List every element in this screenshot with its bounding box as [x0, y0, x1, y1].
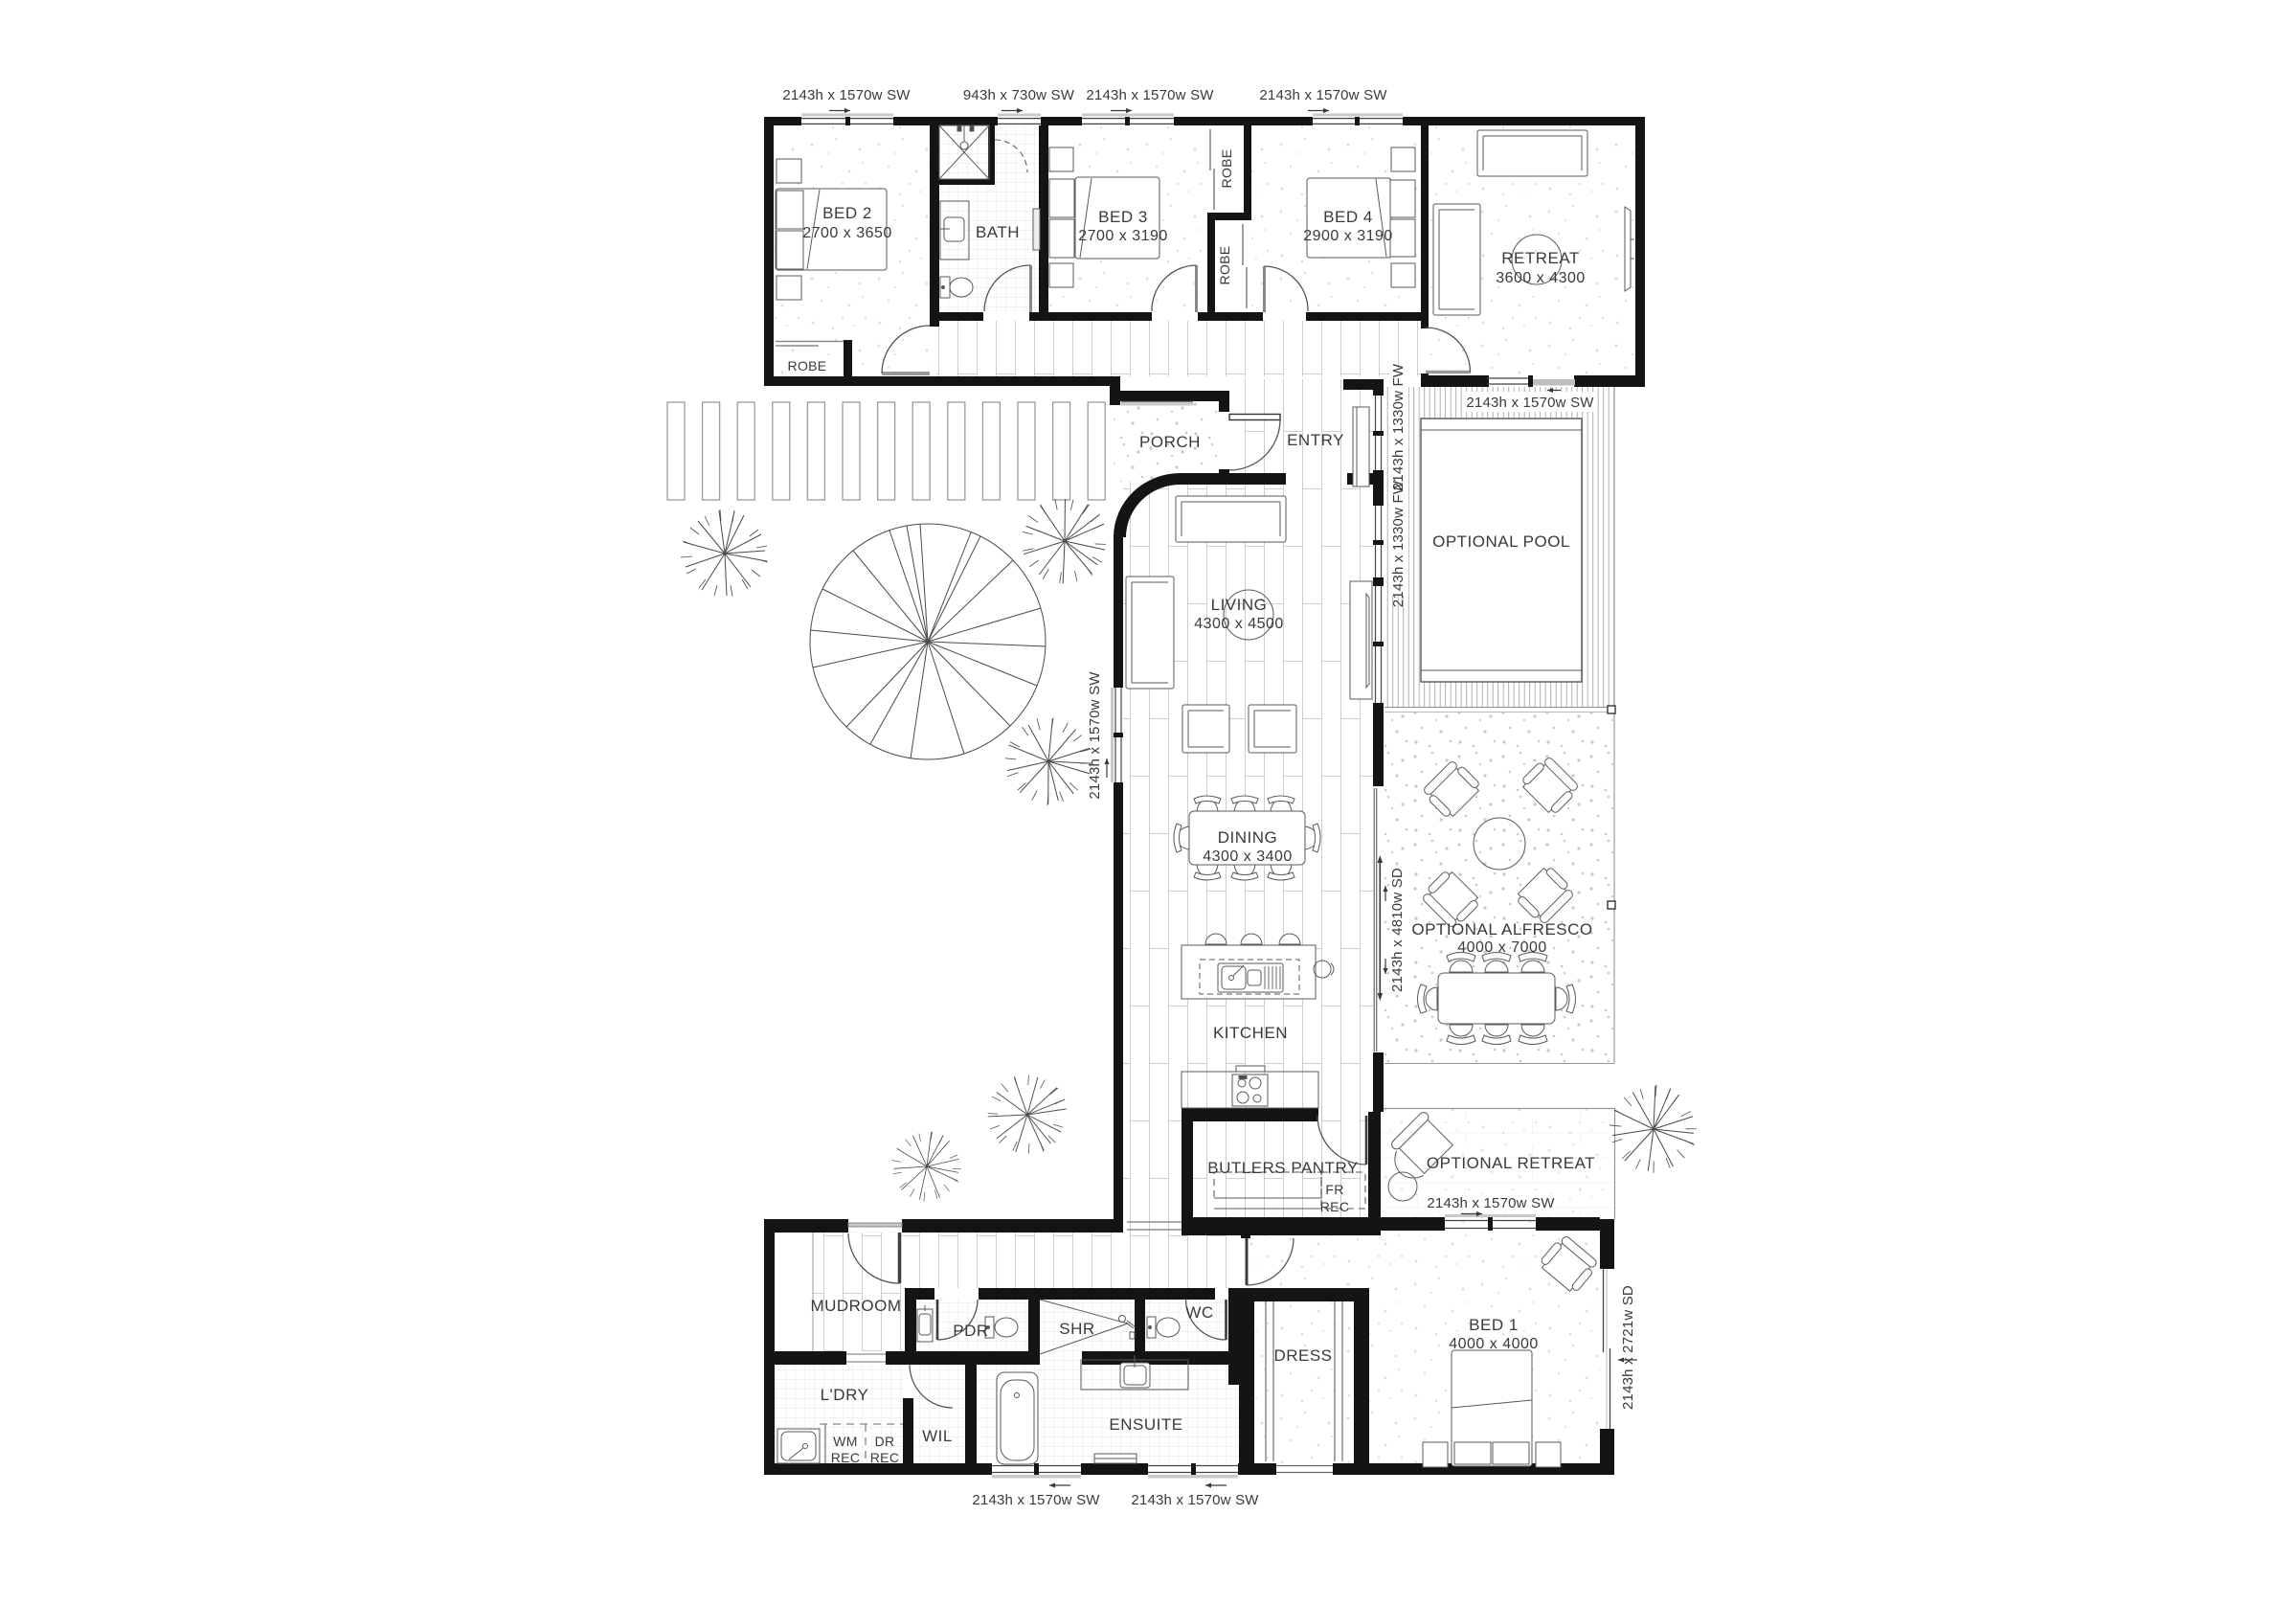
svg-text:2143h x 1570w SW: 2143h x 1570w SW [1259, 87, 1387, 103]
svg-text:RETREAT: RETREAT [1501, 249, 1580, 267]
svg-text:BATH: BATH [976, 223, 1020, 241]
svg-text:LIVING: LIVING [1211, 596, 1268, 614]
svg-text:ENTRY: ENTRY [1287, 431, 1344, 449]
svg-text:ROBE: ROBE [788, 358, 827, 373]
svg-text:OPTIONAL POOL: OPTIONAL POOL [1432, 532, 1570, 551]
svg-text:KITCHEN: KITCHEN [1213, 1024, 1288, 1042]
svg-text:2143h x 1330w FW: 2143h x 1330w FW [1390, 480, 1407, 607]
svg-text:PORCH: PORCH [1139, 433, 1201, 451]
svg-text:4000 x 7000: 4000 x 7000 [1457, 939, 1547, 956]
svg-text:4300 x 4500: 4300 x 4500 [1194, 616, 1284, 632]
svg-text:REC: REC [831, 1450, 860, 1465]
svg-text:REC: REC [870, 1450, 899, 1465]
svg-text:2143h x 1570w SW: 2143h x 1570w SW [1086, 87, 1214, 103]
svg-text:4300 x 3400: 4300 x 3400 [1203, 848, 1293, 865]
svg-text:2700 x 3650: 2700 x 3650 [802, 225, 892, 241]
svg-text:4000 x 4000: 4000 x 4000 [1449, 1336, 1539, 1352]
svg-text:943h x 730w SW: 943h x 730w SW [963, 87, 1075, 103]
svg-text:BUTLERS PANTRY: BUTLERS PANTRY [1207, 1159, 1359, 1177]
svg-text:2143h x 1570w SW: 2143h x 1570w SW [1131, 1492, 1259, 1508]
svg-text:2700 x 3190: 2700 x 3190 [1078, 228, 1168, 244]
svg-text:WM: WM [833, 1434, 857, 1449]
svg-text:BED 2: BED 2 [822, 204, 872, 222]
svg-text:ENSUITE: ENSUITE [1109, 1415, 1182, 1434]
svg-text:2143h x 1570w SW: 2143h x 1570w SW [782, 87, 911, 103]
svg-text:OPTIONAL RETREAT: OPTIONAL RETREAT [1427, 1154, 1595, 1172]
svg-text:BED 1: BED 1 [1469, 1316, 1519, 1334]
svg-text:2143h x 2721w SD: 2143h x 2721w SD [1620, 1285, 1636, 1410]
svg-text:DR: DR [875, 1434, 895, 1449]
svg-text:2143h x 1570w SW: 2143h x 1570w SW [972, 1492, 1100, 1508]
svg-text:3600 x 4300: 3600 x 4300 [1496, 270, 1586, 286]
svg-text:2900 x 3190: 2900 x 3190 [1303, 228, 1393, 244]
svg-text:WC: WC [1185, 1303, 1213, 1322]
svg-text:ROBE: ROBE [1219, 149, 1234, 189]
svg-text:L'DRY: L'DRY [821, 1386, 869, 1404]
svg-text:2143h x 1570w SW: 2143h x 1570w SW [1087, 671, 1103, 800]
svg-text:ROBE: ROBE [1217, 246, 1232, 285]
svg-text:MUDROOM: MUDROOM [810, 1297, 901, 1315]
svg-text:OPTIONAL ALFRESCO: OPTIONAL ALFRESCO [1411, 920, 1592, 939]
svg-text:2143h x 1330w FW: 2143h x 1330w FW [1390, 363, 1407, 490]
svg-text:DINING: DINING [1218, 828, 1278, 847]
svg-text:SHR: SHR [1059, 1320, 1094, 1338]
svg-text:BED 3: BED 3 [1098, 208, 1148, 226]
svg-text:DRESS: DRESS [1273, 1346, 1332, 1365]
svg-text:BED 4: BED 4 [1323, 208, 1373, 226]
svg-text:FR: FR [1325, 1182, 1343, 1197]
svg-text:REC: REC [1320, 1199, 1349, 1214]
svg-text:WIL: WIL [922, 1427, 953, 1445]
svg-text:2143h x 1570w SW: 2143h x 1570w SW [1466, 395, 1594, 411]
svg-text:2143h x 4810w SD: 2143h x 4810w SD [1389, 868, 1406, 992]
svg-text:2143h x 1570w SW: 2143h x 1570w SW [1427, 1195, 1555, 1211]
svg-text:PDR: PDR [953, 1322, 988, 1340]
